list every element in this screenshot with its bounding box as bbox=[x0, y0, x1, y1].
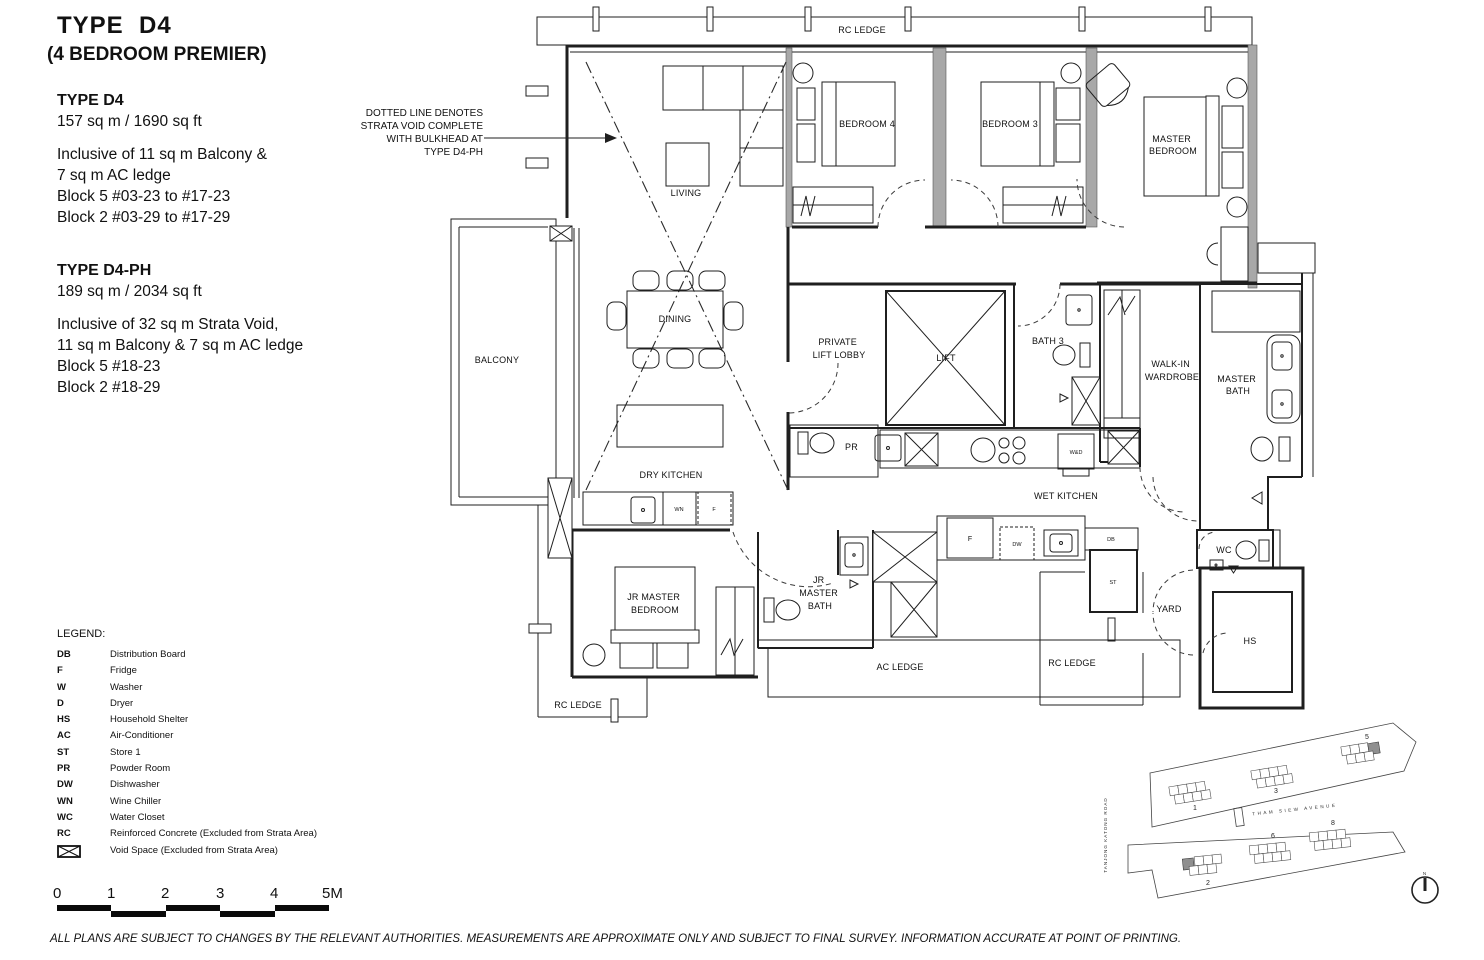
legend-desc: Powder Room bbox=[110, 763, 170, 774]
label-line: BEDROOM bbox=[1149, 146, 1197, 156]
site-block-number-8: 8 bbox=[1331, 820, 1335, 827]
master-bath-fixtures bbox=[1212, 291, 1300, 504]
door-arcs bbox=[733, 179, 1229, 655]
legend-code: DB bbox=[57, 649, 110, 660]
bedroom3-furniture bbox=[981, 63, 1083, 223]
spec-d4ph-line: Inclusive of 32 sq m Strata Void, bbox=[57, 314, 303, 335]
legend-row: HSHousehold Shelter bbox=[57, 714, 317, 730]
road-label-tham-siew-avenue: THAM SIEW AVENUE bbox=[1252, 803, 1338, 817]
appliance-label-f-dry: F bbox=[712, 507, 716, 513]
site-block-6 bbox=[1249, 842, 1291, 864]
powder-room-fixtures bbox=[790, 425, 878, 477]
disclaimer-text: ALL PLANS ARE SUBJECT TO CHANGES BY THE … bbox=[50, 933, 1210, 945]
living-furniture bbox=[663, 66, 783, 186]
site-block-number-2: 2 bbox=[1206, 880, 1210, 887]
scale-label: 4 bbox=[270, 885, 278, 902]
site-block-number-5: 5 bbox=[1365, 734, 1369, 741]
room-label-balcony: BALCONY bbox=[475, 355, 519, 365]
legend-code: WC bbox=[57, 812, 110, 823]
site-block-5 bbox=[1341, 741, 1381, 765]
room-label-wc: WC bbox=[1216, 545, 1232, 555]
legend-desc: Store 1 bbox=[110, 747, 141, 758]
room-label-ac-ledge: AC LEDGE bbox=[876, 662, 923, 672]
strata-void-lines bbox=[586, 62, 788, 490]
dry-kitchen-fixtures bbox=[583, 405, 733, 525]
legend-desc: Fridge bbox=[110, 665, 137, 676]
spec-d4-line: Block 5 #03-23 to #17-23 bbox=[57, 186, 267, 207]
spec-d4ph-line: Block 2 #18-29 bbox=[57, 377, 303, 398]
spec-d4ph-area: 189 sq m / 2034 sq ft bbox=[57, 281, 303, 302]
legend-row: WNWine Chiller bbox=[57, 796, 317, 812]
label-line: MASTER bbox=[1152, 134, 1191, 144]
scale-bar: 0 1 2 3 4 5M bbox=[57, 885, 357, 920]
legend-code: DW bbox=[57, 779, 110, 790]
svg-text:N: N bbox=[1423, 871, 1427, 876]
appliance-label-st: ST bbox=[1109, 580, 1117, 586]
legend-desc: Dishwasher bbox=[110, 779, 160, 790]
legend-code: D bbox=[57, 698, 110, 709]
label-line: WALK-IN bbox=[1151, 359, 1190, 369]
legend-row: DWDishwasher bbox=[57, 779, 317, 795]
legend-desc: Reinforced Concrete (Excluded from Strat… bbox=[110, 828, 317, 839]
spec-d4ph-line: 11 sq m Balcony & 7 sq m AC ledge bbox=[57, 335, 303, 356]
scale-label: 0 bbox=[53, 885, 61, 902]
legend-row: RCReinforced Concrete (Excluded from Str… bbox=[57, 828, 317, 844]
scale-label: 2 bbox=[161, 885, 169, 902]
legend-row: PRPowder Room bbox=[57, 763, 317, 779]
spec-d4ph-heading: TYPE D4-PH bbox=[57, 260, 303, 281]
site-plan: 1 3 5 2 6 8 THAM SIEW AVENUE TANJONG KAT… bbox=[1095, 705, 1455, 935]
legend-row-void: Void Space (Excluded from Strata Area) bbox=[57, 845, 317, 861]
legend-desc: Household Shelter bbox=[110, 714, 188, 725]
appliance-label-wd: W&D bbox=[1070, 450, 1083, 456]
room-label-living: LIVING bbox=[671, 188, 702, 198]
room-label-master-bedroom: MASTER BEDROOM bbox=[1149, 134, 1197, 156]
legend-title: LEGEND: bbox=[57, 628, 317, 640]
legend-code: ST bbox=[57, 747, 110, 758]
legend-code: WN bbox=[57, 796, 110, 807]
room-label-wet-kitchen: WET KITCHEN bbox=[1034, 491, 1098, 501]
label-line: LIFT LOBBY bbox=[813, 350, 866, 360]
void-space-symbol bbox=[57, 845, 110, 861]
legend-row: DDryer bbox=[57, 698, 317, 714]
legend-code: F bbox=[57, 665, 110, 676]
appliance-label-wn: WN bbox=[674, 507, 683, 513]
legend-row: ACAir-Conditioner bbox=[57, 730, 317, 746]
room-label-rc-ledge-bl: RC LEDGE bbox=[554, 700, 602, 710]
site-block-3 bbox=[1251, 765, 1293, 789]
page-subtitle: (4 BEDROOM PREMIER) bbox=[47, 44, 267, 66]
room-label-bedroom4: BEDROOM 4 bbox=[839, 119, 895, 129]
title-block: TYPE D4 (4 BEDROOM PREMIER) bbox=[47, 12, 267, 66]
spec-type-d4: TYPE D4 157 sq m / 1690 sq ft Inclusive … bbox=[57, 90, 267, 228]
rc-ledge-top bbox=[537, 7, 1252, 45]
spec-d4-area: 157 sq m / 1690 sq ft bbox=[57, 111, 267, 132]
room-label-rc-ledge-br: RC LEDGE bbox=[1048, 658, 1096, 668]
legend-desc: Water Closet bbox=[110, 812, 165, 823]
floor-plan-page: TYPE D4 (4 BEDROOM PREMIER) TYPE D4 157 … bbox=[0, 0, 1484, 960]
north-arrow-icon: N bbox=[1412, 871, 1438, 903]
legend-code: W bbox=[57, 682, 110, 693]
room-label-jr-master-bedroom: JR MASTER BEDROOM bbox=[627, 592, 683, 615]
legend-desc: Void Space (Excluded from Strata Area) bbox=[110, 845, 278, 856]
label-line: BEDROOM bbox=[631, 605, 679, 615]
room-label-dry-kitchen: DRY KITCHEN bbox=[640, 470, 703, 480]
label-line: PRIVATE bbox=[818, 337, 857, 347]
room-label-master-bath: MASTER BATH bbox=[1217, 374, 1258, 396]
spec-d4-line: Inclusive of 11 sq m Balcony & bbox=[57, 144, 267, 165]
bedroom4-furniture bbox=[793, 63, 895, 223]
legend-row: STStore 1 bbox=[57, 747, 317, 763]
room-label-bath3: BATH 3 bbox=[1032, 336, 1064, 346]
legend-code: PR bbox=[57, 763, 110, 774]
legend-desc: Washer bbox=[110, 682, 142, 693]
legend: LEGEND: DBDistribution Board FFridge WWa… bbox=[57, 628, 317, 861]
legend-code: AC bbox=[57, 730, 110, 741]
floor-plan-drawing: RC LEDGE LIVING BEDROOM 4 BEDROOM 3 MAST… bbox=[430, 0, 1335, 745]
room-label-hs: HS bbox=[1244, 636, 1257, 646]
road-label-tanjong-katong-road: TANJONG KATONG ROAD bbox=[1103, 797, 1108, 872]
spec-d4ph-line: Block 5 #18-23 bbox=[57, 356, 303, 377]
spec-d4-heading: TYPE D4 bbox=[57, 90, 267, 111]
room-label-lift: LIFT bbox=[936, 353, 956, 363]
room-label-dining: DINING bbox=[659, 314, 692, 324]
master-bedroom-furniture bbox=[1085, 62, 1248, 281]
legend-desc: Distribution Board bbox=[110, 649, 186, 660]
legend-desc: Wine Chiller bbox=[110, 796, 161, 807]
room-label-walk-in-wardrobe: WALK-IN WARDROBE bbox=[1145, 359, 1199, 382]
scale-label: 1 bbox=[107, 885, 115, 902]
label-line: BATH bbox=[808, 601, 832, 611]
label-line: BATH bbox=[1226, 386, 1250, 396]
room-label-jr-master-bath: JR MASTER BATH bbox=[799, 575, 840, 611]
room-label-yard: YARD bbox=[1156, 604, 1181, 614]
room-label-bedroom3: BEDROOM 3 bbox=[982, 119, 1038, 129]
appliance-label-f-wet: F bbox=[968, 536, 972, 543]
legend-row: DBDistribution Board bbox=[57, 649, 317, 665]
site-block-2 bbox=[1182, 854, 1223, 876]
scale-bar-graphic bbox=[57, 905, 329, 917]
scale-label: 3 bbox=[216, 885, 224, 902]
appliance-label-dw: DW bbox=[1012, 542, 1022, 548]
room-label-pr: PR bbox=[845, 442, 858, 452]
site-block-number-1: 1 bbox=[1193, 805, 1197, 812]
label-line: WARDROBE bbox=[1145, 372, 1199, 382]
label-line: JR MASTER bbox=[627, 592, 680, 602]
wardrobe-fixtures bbox=[1104, 290, 1140, 438]
legend-code: HS bbox=[57, 714, 110, 725]
spec-type-d4ph: TYPE D4-PH 189 sq m / 2034 sq ft Inclusi… bbox=[57, 260, 303, 398]
room-label-private-lift-lobby: PRIVATE LIFT LOBBY bbox=[813, 337, 866, 360]
appliance-label-db: DB bbox=[1107, 537, 1115, 543]
annotation-arrow bbox=[484, 133, 617, 143]
site-block-1 bbox=[1169, 781, 1211, 805]
spec-d4-line: 7 sq m AC ledge bbox=[57, 165, 267, 186]
spec-d4-line: Block 2 #03-29 to #17-29 bbox=[57, 207, 267, 228]
jr-master-bedroom-furniture bbox=[583, 567, 754, 675]
label-line: MASTER bbox=[799, 588, 838, 598]
legend-row: WCWater Closet bbox=[57, 812, 317, 828]
legend-desc: Air-Conditioner bbox=[110, 730, 173, 741]
scale-label: 5M bbox=[322, 885, 343, 902]
legend-row: WWasher bbox=[57, 682, 317, 698]
site-block-number-3: 3 bbox=[1274, 788, 1278, 795]
legend-row: FFridge bbox=[57, 665, 317, 681]
room-label-rc-ledge-top: RC LEDGE bbox=[838, 25, 886, 35]
site-block-8 bbox=[1309, 829, 1351, 851]
site-block-number-6: 6 bbox=[1271, 833, 1275, 840]
legend-code: RC bbox=[57, 828, 110, 839]
page-title: TYPE D4 bbox=[57, 12, 267, 40]
label-line: MASTER bbox=[1217, 374, 1256, 384]
legend-desc: Dryer bbox=[110, 698, 133, 709]
label-line: JR bbox=[813, 575, 825, 585]
